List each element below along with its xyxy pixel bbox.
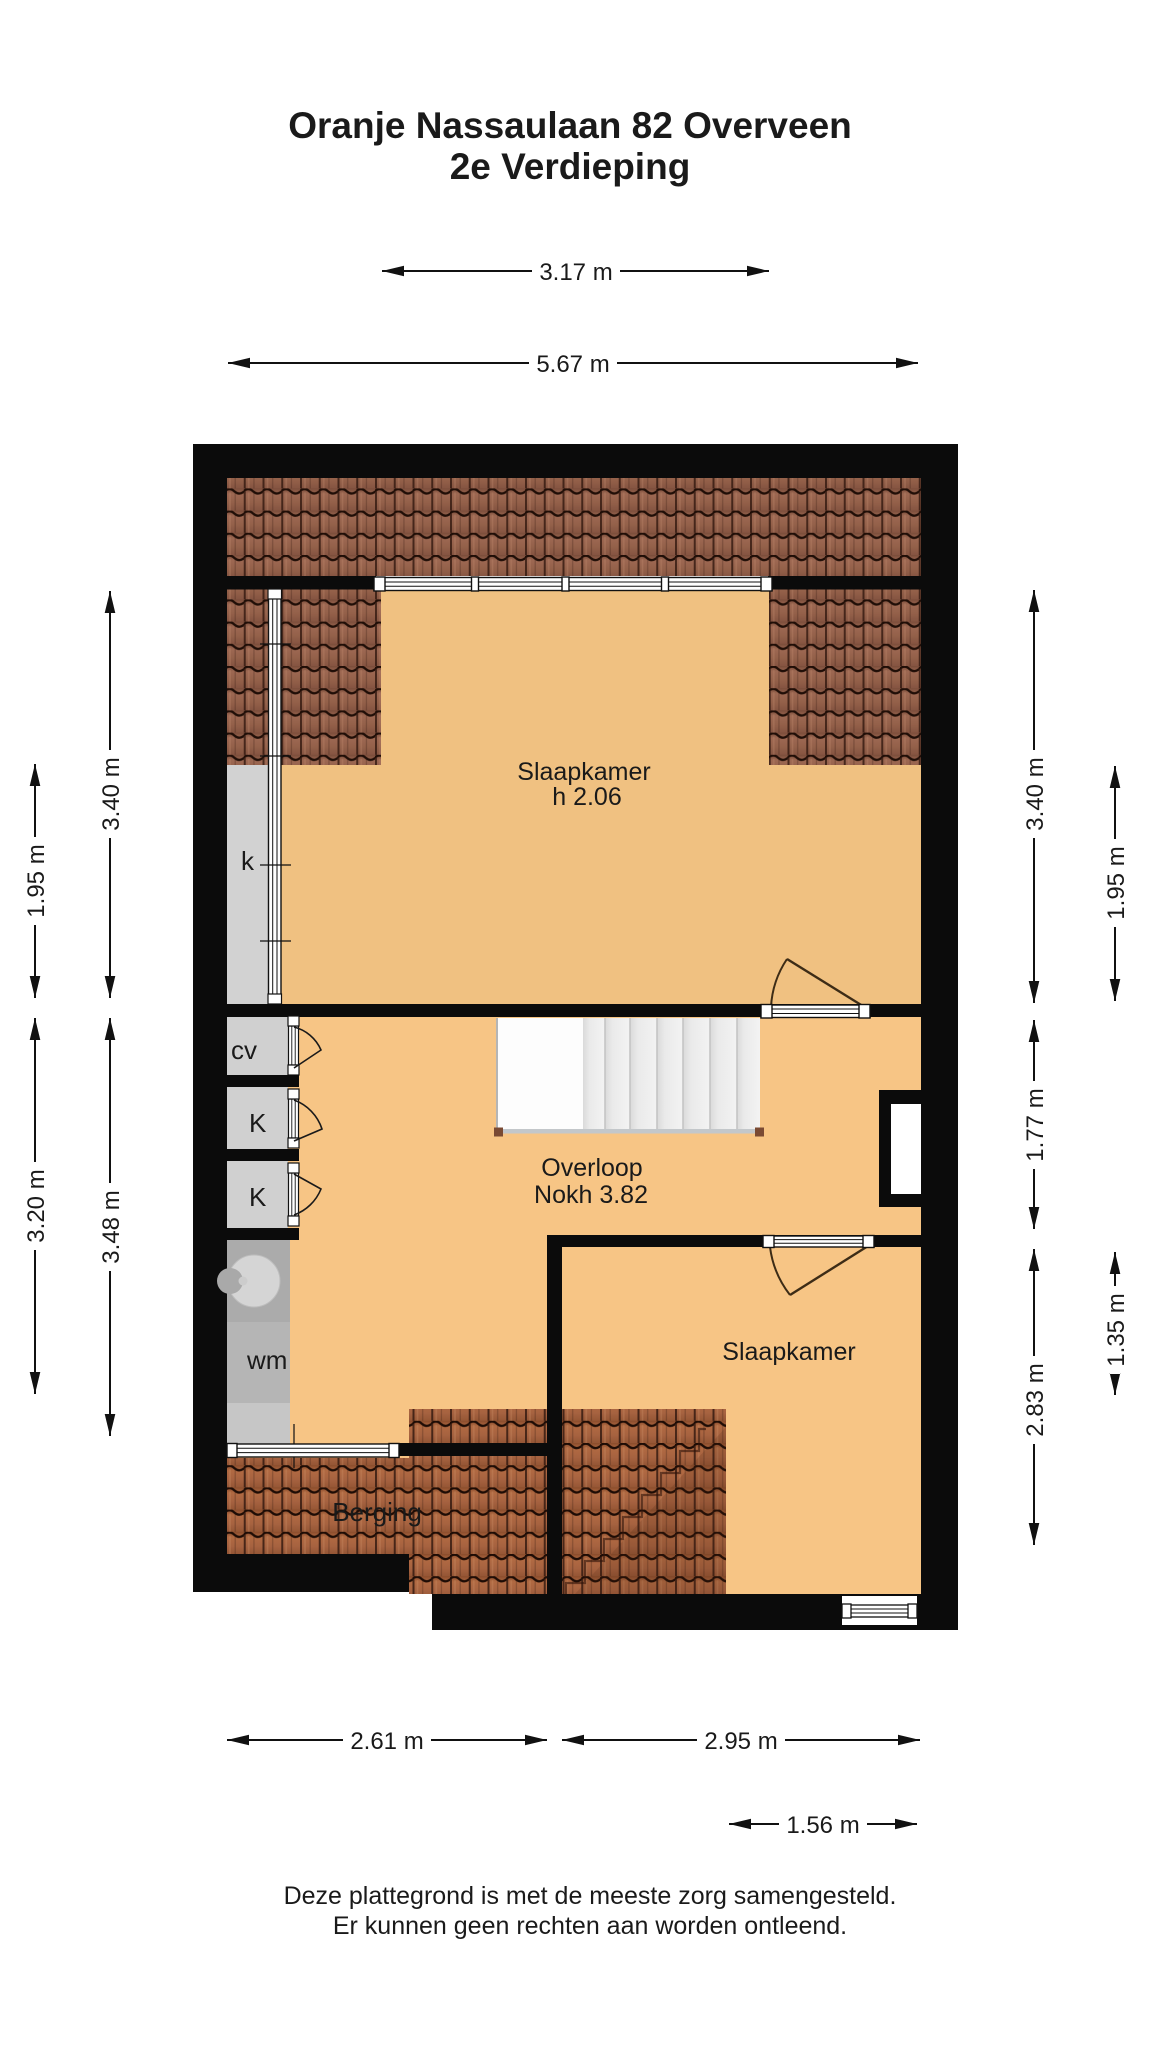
svg-text:1.56 m: 1.56 m xyxy=(786,1812,859,1839)
svg-text:Overloop: Overloop xyxy=(541,1154,642,1182)
svg-text:1.35 m: 1.35 m xyxy=(1103,1293,1130,1366)
svg-text:2.61 m: 2.61 m xyxy=(350,1728,423,1755)
svg-text:K: K xyxy=(249,1182,267,1212)
svg-text:1.95 m: 1.95 m xyxy=(23,844,50,917)
svg-text:Oranje Nassaulaan 82 Overveen: Oranje Nassaulaan 82 Overveen xyxy=(288,105,852,146)
svg-text:2.95 m: 2.95 m xyxy=(704,1728,777,1755)
svg-text:K: K xyxy=(249,1108,267,1138)
svg-text:k: k xyxy=(241,846,255,876)
svg-text:1.77 m: 1.77 m xyxy=(1022,1088,1049,1161)
svg-text:2e Verdieping: 2e Verdieping xyxy=(450,146,691,187)
svg-text:Slaapkamer: Slaapkamer xyxy=(722,1338,855,1366)
svg-text:1.95 m: 1.95 m xyxy=(1103,846,1130,919)
svg-text:Deze plattegrond is met de mee: Deze plattegrond is met de meeste zorg s… xyxy=(284,1882,897,1910)
svg-text:3.48 m: 3.48 m xyxy=(98,1190,125,1263)
svg-text:cv: cv xyxy=(231,1035,257,1065)
svg-text:Nokh 3.82: Nokh 3.82 xyxy=(534,1181,648,1209)
svg-text:5.67 m: 5.67 m xyxy=(536,351,609,378)
svg-text:Berging: Berging xyxy=(332,1497,422,1527)
svg-text:3.40 m: 3.40 m xyxy=(1022,757,1049,830)
svg-text:Er kunnen geen rechten aan wor: Er kunnen geen rechten aan worden ontlee… xyxy=(333,1912,847,1940)
svg-text:h 2.06: h 2.06 xyxy=(552,783,622,811)
svg-text:3.40 m: 3.40 m xyxy=(98,757,125,830)
svg-text:3.20 m: 3.20 m xyxy=(23,1169,50,1242)
svg-text:2.83 m: 2.83 m xyxy=(1022,1363,1049,1436)
svg-text:Slaapkamer: Slaapkamer xyxy=(517,758,650,786)
svg-text:3.17 m: 3.17 m xyxy=(539,259,612,286)
svg-text:wm: wm xyxy=(246,1345,287,1375)
